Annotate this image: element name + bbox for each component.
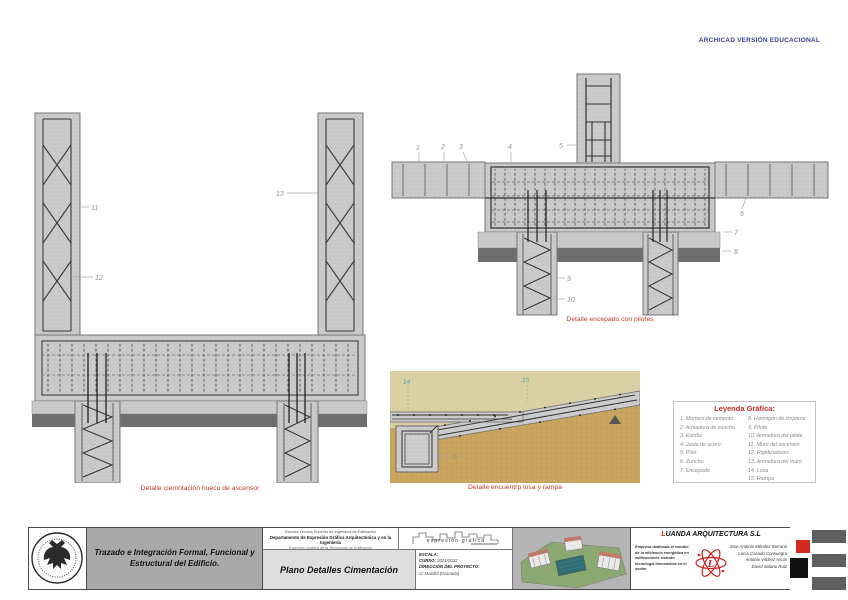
legend-item: 8. Hormigón de limpieza xyxy=(748,415,814,424)
legend-item: 9. Pilote xyxy=(748,424,814,433)
expresion-grafica-logo: expresión gráfica xyxy=(399,528,513,550)
callout-mortero: 1 xyxy=(416,145,420,152)
registration-bar-3 xyxy=(812,577,846,590)
callout-rampa: 15 xyxy=(522,377,530,384)
legend-item: 5. Pilar xyxy=(680,449,744,458)
drawing-sheet: ARCHICAD VERSIÓN EDUCACIONAL xyxy=(0,0,848,600)
project-title-line2: Estructural del Edificio. xyxy=(87,559,262,570)
legend-item: 7. Encepado xyxy=(680,467,744,476)
ugr-seal xyxy=(29,528,86,589)
column xyxy=(577,74,620,164)
caption-ramp-detail: Detalle encuentrp losa y rampa xyxy=(390,484,640,491)
registration-bar-2 xyxy=(812,554,846,567)
graphic-legend: Leyenda Gráfica: 1. Mortero de cemento 2… xyxy=(673,401,816,483)
member-name: David Solano Ruiz xyxy=(715,564,787,571)
callout-zuncho-rampa: 6 xyxy=(453,454,457,461)
sheet-title-cell: Plano Detalles Cimentación xyxy=(263,550,416,589)
company-name: LUANDA ARQUITECTURA S.L xyxy=(631,531,791,538)
elevator-pit-detail-drawing: 11 12 13 xyxy=(30,103,370,483)
registration-mark-black xyxy=(790,558,808,578)
legend-item: 10. Armadura del pilote xyxy=(748,432,814,441)
callout-pilar: 5 xyxy=(559,143,563,150)
course-value: 2021/2022 xyxy=(437,558,457,563)
callout-armadura-zuncho: 2 xyxy=(440,144,445,151)
callout-pilote: 9 xyxy=(567,276,571,283)
callout-armadura-pilote: 10 xyxy=(567,297,575,304)
archicad-banner: ARCHICAD VERSIÓN EDUCACIONAL xyxy=(620,37,820,44)
department-name: Departamento de Expresión Gráfica Arquit… xyxy=(263,535,398,545)
site-render-thumbnail xyxy=(513,528,631,589)
legend-item: 12. Rigidizadores xyxy=(748,449,814,458)
pile-cap xyxy=(485,163,715,232)
callout-muro-ascensor: 11 xyxy=(91,205,98,212)
member-name: Lucía Casado Consuegra xyxy=(715,551,787,558)
caption-elevator-detail: Detalle ciemntación hueco de ascensor xyxy=(30,485,370,492)
legend-item: 6. Zuncho xyxy=(680,458,744,467)
address-label: DIRECCIÓN DEL PROYECTO: xyxy=(419,564,479,569)
callout-armadura-muro: 13 xyxy=(276,191,284,198)
legend-item: 11. Muro del ascensor xyxy=(748,441,814,450)
registration-bar-1 xyxy=(812,530,846,543)
expresion-grafica-text: expresión gráfica xyxy=(427,538,485,544)
member-name: Jose Antonio Méndez Serrano xyxy=(715,544,787,551)
callout-jaula: 4 xyxy=(508,144,512,151)
scale-info-cell: ESCALA: CURSO: 2021/2022 DIRECCIÓN DEL P… xyxy=(416,550,513,589)
project-title-cell: Trazado e Integración Formal, Funcional … xyxy=(86,528,263,589)
member-name: Antonio Vilchez Arcos xyxy=(715,557,787,564)
university-logo-cell xyxy=(29,528,86,589)
title-block: Trazado e Integración Formal, Funcional … xyxy=(28,527,790,590)
shaft-walls xyxy=(35,113,363,335)
company-members: Jose Antonio Méndez Serrano Lucía Casado… xyxy=(715,544,787,570)
legend-item: 4. Jaula de acero xyxy=(680,441,744,450)
legend-column-left: 1. Mortero de cemento 2. Armadura de zun… xyxy=(680,415,744,475)
callout-rigidizadores: 12 xyxy=(95,275,103,282)
project-title-line1: Trazado e Integración Formal, Funcional … xyxy=(87,548,262,559)
course-label: CURSO: xyxy=(419,558,436,563)
company-description: Empresa dedicada al estudio de la eficie… xyxy=(635,544,691,572)
address-value: C/ Malahá (Granada) xyxy=(419,571,459,576)
registration-mark-red xyxy=(796,540,810,553)
ramp-footing xyxy=(396,425,438,472)
caption-pilecap-detail: Detalle encepado con pilotes xyxy=(390,316,830,323)
legend-item: 15. Rampa xyxy=(748,475,814,484)
company-cell: LUANDA ARQUITECTURA S.L Empresa dedicada… xyxy=(631,528,791,589)
callout-zuncho: 6 xyxy=(740,211,744,218)
legend-item: 1. Mortero de cemento xyxy=(680,415,744,424)
callout-hormigon-limpieza: 8 xyxy=(734,249,738,256)
ramp-detail-drawing: 14 15 6 xyxy=(390,371,640,483)
expresion-grafica-logo-cell: expresión gráfica xyxy=(399,528,513,550)
sheet-title: Plano Detalles Cimentación xyxy=(280,565,398,575)
school-name: Escuela Técnica Superior de Ingeniería d… xyxy=(263,530,398,534)
elevator-leader-lines xyxy=(71,193,318,277)
pit-slab xyxy=(35,335,365,401)
building-center xyxy=(564,536,583,551)
legend-item: 2. Armadura de zuncho xyxy=(680,424,744,433)
legend-title: Leyenda Gráfica: xyxy=(674,404,815,413)
legend-column-right: 8. Hormigón de limpieza 9. Pilote 10. Ar… xyxy=(748,415,814,484)
pilecap-detail-drawing: 1 2 3 4 5 6 7 8 9 10 xyxy=(390,72,830,317)
callout-encepado: 7 xyxy=(734,230,739,237)
legend-item: 3. Estribo xyxy=(680,432,744,441)
svg-text:L: L xyxy=(707,558,715,570)
legend-item: 13. Armadura del muro xyxy=(748,458,814,467)
company-name-rest: UANDA ARQUITECTURA S.L xyxy=(666,531,761,538)
callout-losa: 14 xyxy=(403,379,411,386)
legend-item: 14. Losa xyxy=(748,467,814,476)
department-cell: Escuela Técnica Superior de Ingeniería d… xyxy=(263,528,399,550)
callout-estribo: 3 xyxy=(459,144,463,151)
scale-label: ESCALA: xyxy=(419,552,438,557)
